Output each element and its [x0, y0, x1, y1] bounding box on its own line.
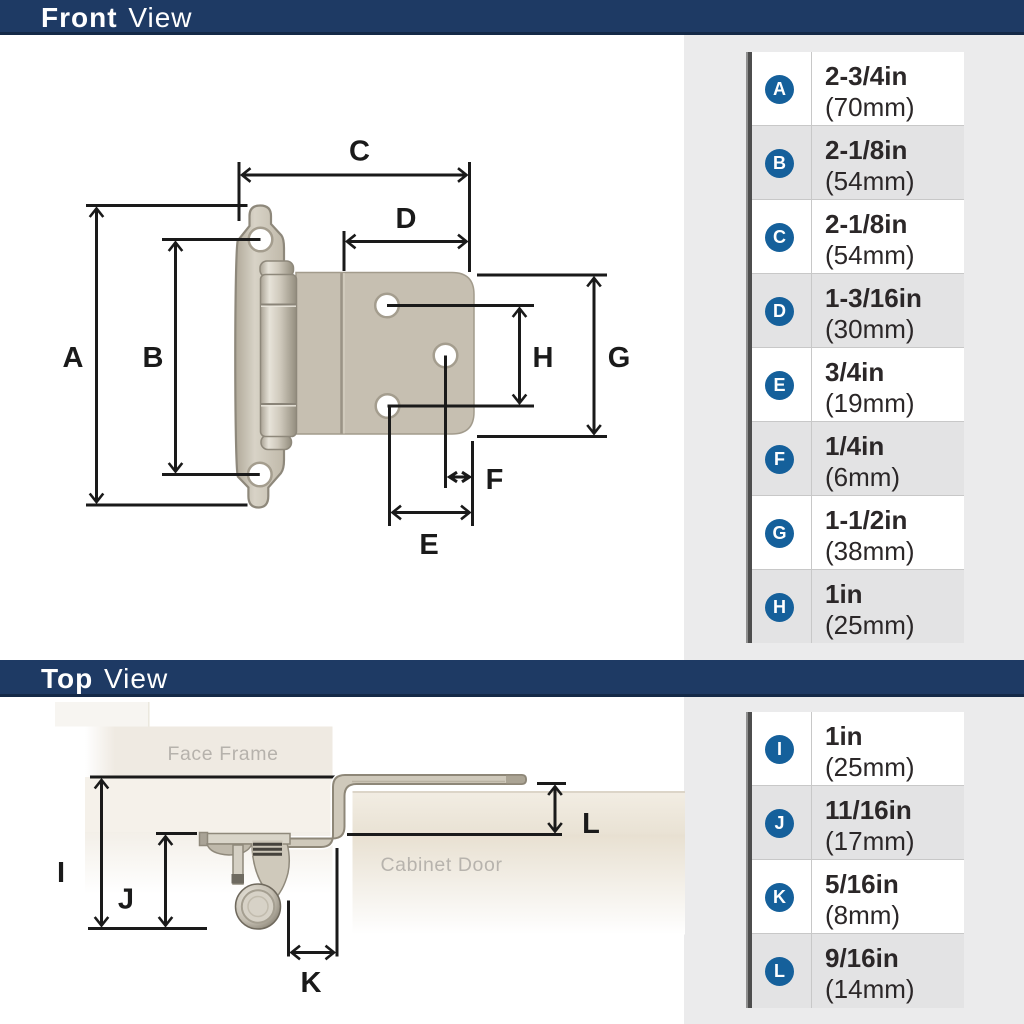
svg-text:Face Frame: Face Frame	[167, 743, 278, 765]
svg-text:D: D	[396, 203, 417, 235]
svg-text:C: C	[349, 136, 370, 168]
svg-text:G: G	[608, 342, 631, 374]
svg-text:E: E	[419, 529, 438, 561]
svg-text:A: A	[63, 342, 84, 374]
svg-text:K: K	[301, 967, 322, 999]
svg-text:F: F	[486, 464, 504, 496]
svg-text:I: I	[57, 857, 65, 889]
svg-text:J: J	[118, 884, 134, 916]
svg-text:B: B	[143, 342, 164, 374]
svg-text:L: L	[582, 808, 600, 840]
svg-text:H: H	[533, 342, 554, 374]
svg-text:Cabinet Door: Cabinet Door	[380, 854, 502, 876]
